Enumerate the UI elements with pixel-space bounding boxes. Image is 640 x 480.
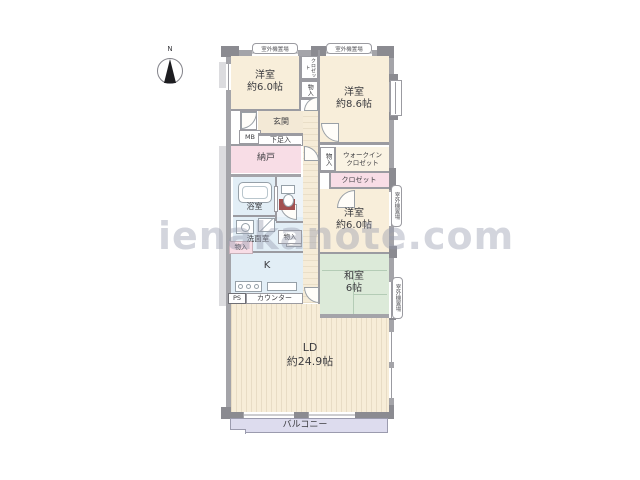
wall-int — [301, 79, 318, 81]
outdoor-unit-label: 室外機置場 — [392, 277, 403, 319]
window — [389, 368, 394, 398]
label-storage-wic: 物入 — [321, 149, 335, 169]
label-bedroom1: 洋室約6.0帖 — [236, 68, 294, 96]
wall-int — [231, 174, 301, 177]
toilet-icon — [281, 185, 295, 194]
label-nando: 納戸 — [241, 151, 291, 167]
wall-int — [299, 56, 301, 109]
stove-icon — [235, 281, 262, 292]
label-storage-top: 物入 — [303, 82, 316, 97]
label-geta: 下足入 — [260, 135, 301, 146]
label-mb: MB — [240, 131, 260, 143]
label-closet: クロゼット — [334, 174, 384, 186]
window — [389, 332, 394, 362]
label-genkan: 玄関 — [262, 115, 300, 129]
compass-needle-icon — [164, 59, 176, 83]
floorplan-canvas: N — [0, 0, 640, 480]
label-bedroom2: 洋室約8.6帖 — [325, 85, 383, 113]
label-wic: ウォークインクロゼット — [337, 149, 388, 169]
outdoor-unit-label: 室外機置場 — [252, 43, 298, 54]
bathtub-icon — [238, 182, 272, 203]
exterior-sill — [219, 62, 226, 88]
toilet-bowl-icon — [283, 194, 294, 207]
outdoor-unit-label: 室外機置場 — [326, 43, 372, 54]
balcony-label: バルコニー — [255, 420, 355, 432]
balcony-step — [230, 429, 246, 434]
label-bath: 浴室 — [234, 201, 275, 213]
wall-int — [329, 187, 389, 189]
bay-window — [390, 80, 402, 116]
wall-int — [318, 50, 320, 304]
label-closet-tiny: クロゼット — [302, 57, 317, 78]
counter-box: カウンター — [246, 293, 303, 304]
corridor — [303, 111, 319, 303]
bay-window-line — [395, 82, 396, 114]
watermark: ienakanote.com — [158, 214, 488, 260]
label-tatami: 和室6帖 — [325, 269, 383, 297]
label-kitchen: K — [250, 258, 284, 274]
label-living: LD約24.9帖 — [270, 340, 350, 370]
wall-int — [320, 142, 389, 145]
wall-int — [329, 173, 331, 187]
wall-tatami-bottom — [320, 314, 389, 318]
kitchen-sink-icon — [267, 282, 297, 291]
ps-box: PS — [228, 293, 246, 304]
compass-north-label: N — [160, 44, 180, 54]
wall-int — [231, 109, 301, 111]
